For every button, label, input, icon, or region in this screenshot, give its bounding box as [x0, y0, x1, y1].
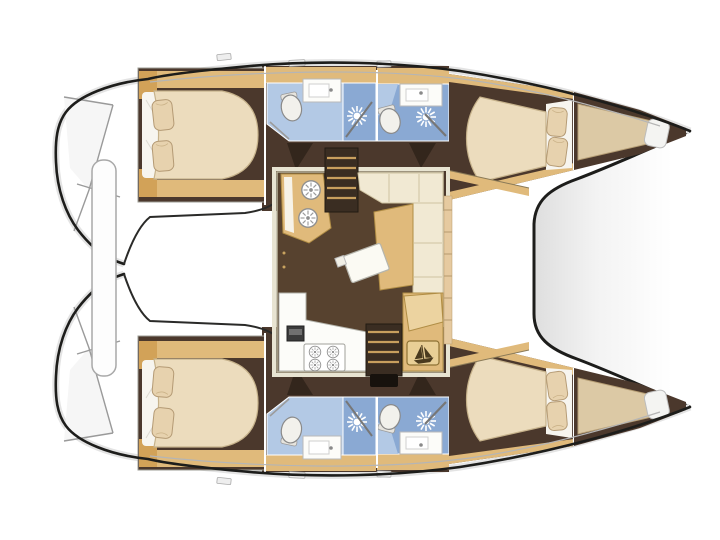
coachroof-trim: [444, 196, 452, 344]
stairs-to-port-hull: [325, 148, 358, 212]
dinette-seat-side: [413, 203, 443, 293]
galley-sink-icon: [302, 181, 320, 199]
stove-burner-icon: [309, 346, 321, 358]
stairs-to-starboard-hull: [366, 324, 402, 387]
hinge-dot: [283, 252, 286, 255]
hinge-dot: [283, 266, 286, 269]
stove-burner-icon: [309, 359, 321, 371]
saloon: [274, 148, 448, 387]
stair-landing: [370, 374, 398, 387]
galley-sink-icon: [299, 209, 317, 227]
floor-plan-canvas: [0, 0, 720, 540]
stove-burner-icon: [327, 346, 339, 358]
trim-band: [444, 196, 452, 344]
galley-sink-unit: [281, 174, 331, 243]
oven-door: [289, 329, 302, 335]
stove-burner-icon: [327, 359, 339, 371]
cockpit-bench: [92, 160, 116, 376]
floor-plan-page: [0, 0, 720, 540]
navigation-station: [403, 293, 443, 371]
